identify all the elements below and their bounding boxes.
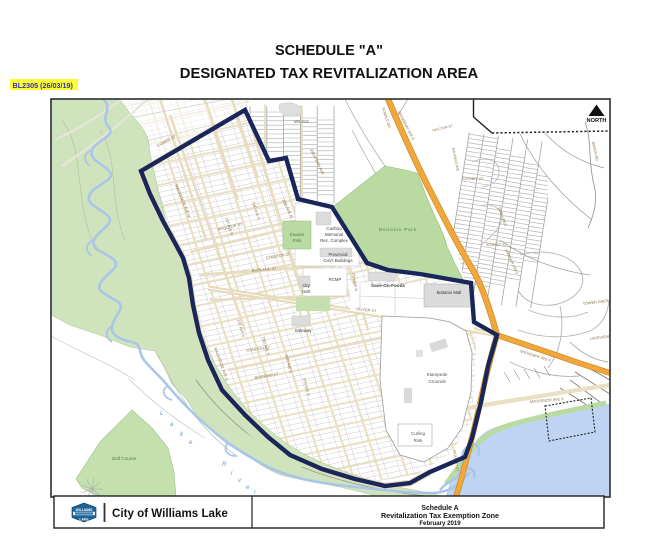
svg-text:SCHEDULE "A": SCHEDULE "A" (275, 43, 383, 59)
svg-text:Boitanio Park: Boitanio Park (379, 227, 417, 232)
svg-text:WLGG: WLGG (294, 119, 309, 125)
svg-text:Memorial: Memorial (325, 232, 343, 237)
svg-text:e: e (246, 484, 250, 491)
svg-text:City: City (302, 283, 310, 288)
svg-text:Cariboo: Cariboo (326, 226, 342, 231)
svg-text:Provincial: Provincial (328, 252, 347, 257)
svg-text:DESIGNATED TAX REVITALIZATION: DESIGNATED TAX REVITALIZATION AREA (180, 66, 479, 82)
svg-text:L: L (160, 410, 164, 417)
svg-text:Golf Course: Golf Course (112, 456, 137, 461)
svg-text:RCMP: RCMP (329, 277, 342, 282)
svg-text:Save-On-Foods: Save-On-Foods (371, 283, 405, 288)
svg-text:a: a (170, 421, 174, 428)
svg-text:Gov't Buildings: Gov't Buildings (323, 258, 353, 263)
svg-text:Boitanio Mall: Boitanio Mall (437, 290, 462, 295)
svg-text:Grounds: Grounds (428, 379, 446, 384)
svg-text:Park: Park (293, 238, 303, 243)
svg-text:Revitalization Tax Exemption Z: Revitalization Tax Exemption Zone (381, 511, 499, 520)
svg-text:February 2019: February 2019 (419, 520, 461, 527)
svg-text:Rec. Complex: Rec. Complex (320, 238, 348, 243)
svg-text:BL2305 (26/03/19): BL2305 (26/03/19) (13, 81, 74, 90)
svg-text:SOMSET ST: SOMSET ST (486, 243, 508, 247)
svg-text:SYDNEY ST: SYDNEY ST (462, 176, 485, 181)
svg-text:Stampede: Stampede (427, 372, 448, 377)
svg-text:Hall: Hall (302, 289, 310, 294)
svg-text:NORTH: NORTH (587, 118, 607, 124)
svg-text:Curling: Curling (411, 431, 425, 436)
svg-text:R: R (222, 461, 227, 468)
svg-text:City of Williams Lake: City of Williams Lake (112, 507, 228, 520)
svg-text:Rink: Rink (414, 438, 424, 443)
svg-text:WILLIAMS: WILLIAMS (76, 508, 93, 512)
svg-text:LAKE: LAKE (79, 518, 89, 522)
svg-text:Safeway: Safeway (295, 328, 313, 333)
svg-text:e: e (189, 439, 193, 446)
svg-text:Kiwanis: Kiwanis (290, 232, 304, 237)
